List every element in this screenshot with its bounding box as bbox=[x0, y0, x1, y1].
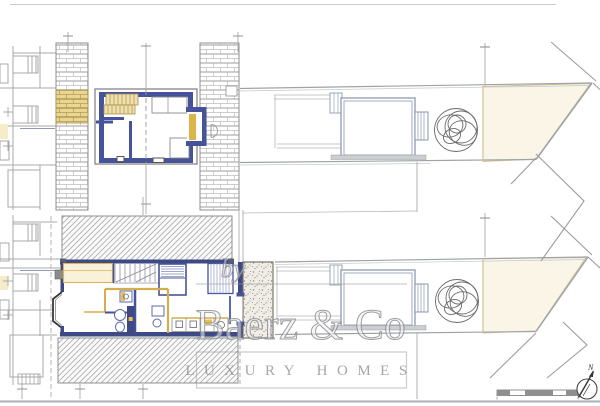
watermark-brand: Baerz & Co bbox=[196, 302, 406, 349]
scale-bar bbox=[497, 390, 578, 400]
watermark-prefix: by bbox=[221, 254, 246, 283]
north-arrow-icon: N bbox=[577, 363, 597, 399]
architectural-plan-svg: N by Baerz & Co LUXURY HOMES bbox=[0, 0, 600, 406]
neighbour-houses-bottom bbox=[0, 215, 60, 398]
party-wall-left-top bbox=[56, 43, 88, 210]
garden-plot-top bbox=[240, 43, 592, 213]
door-threshold bbox=[117, 157, 124, 162]
bay-window bbox=[53, 292, 62, 328]
door-threshold bbox=[153, 158, 164, 163]
tree-icon bbox=[436, 280, 482, 323]
furniture bbox=[152, 97, 187, 113]
bed bbox=[159, 264, 186, 295]
entry-door-unit bbox=[186, 107, 207, 146]
garden-shed-top bbox=[331, 98, 428, 160]
watermark-tagline: LUXURY HOMES bbox=[185, 363, 416, 379]
neighbour-houses-top bbox=[0, 46, 57, 210]
north-label: N bbox=[587, 363, 594, 372]
neighbour-block-hatched-top bbox=[62, 216, 232, 260]
upper-floor-plan bbox=[95, 89, 218, 164]
dimension-marks-bottom bbox=[17, 384, 148, 399]
party-wall-tan-section bbox=[56, 90, 88, 123]
wall-niche bbox=[226, 86, 237, 96]
tree-icon bbox=[435, 109, 481, 152]
garden-steps bbox=[330, 93, 342, 113]
room-top-left bbox=[64, 264, 113, 283]
garden-steps bbox=[330, 265, 342, 285]
floorplan-drawing: N by Baerz & Co LUXURY HOMES bbox=[0, 0, 600, 406]
